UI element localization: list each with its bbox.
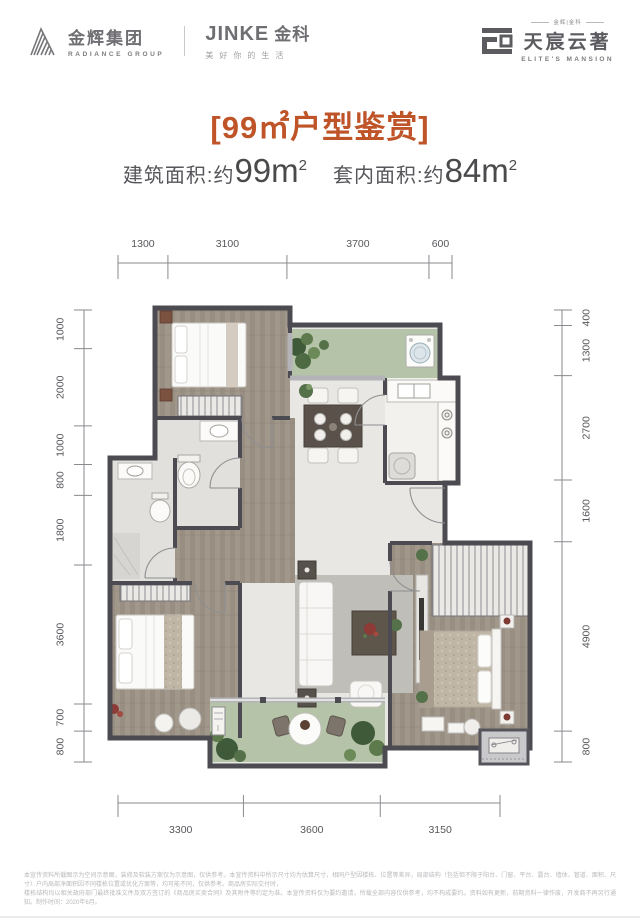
radiance-cn: 金辉集团 [68, 24, 164, 49]
ac-platform [480, 730, 528, 764]
bottom-strip [0, 916, 640, 918]
inner-area: 套内面积:约 84m 2 [333, 152, 517, 190]
svg-text:3300: 3300 [169, 824, 193, 836]
mansion-cloud-icon [481, 25, 513, 57]
mansion-text: 金辉|金科 天宸云著 ELITE'S MANSION [521, 18, 614, 63]
svg-text:1000: 1000 [55, 317, 67, 341]
svg-text:400: 400 [581, 309, 593, 327]
brand-left: 金辉集团 RADIANCE GROUP JINKE 金科 美好你的生活 [28, 20, 310, 61]
svg-text:3100: 3100 [216, 238, 240, 250]
washing-machine-icon [406, 335, 434, 367]
flyer-page: 金辉集团 RADIANCE GROUP JINKE 金科 美好你的生活 [0, 0, 640, 920]
disclaimer-line2: 楼栋结构均以相关政府部门最终批准文件及双方签订的《商品房买卖合同》及其附件等约定… [24, 890, 616, 908]
svg-text:4900: 4900 [581, 625, 593, 649]
svg-text:1300: 1300 [581, 339, 593, 363]
radiance-mountain-icon [28, 25, 58, 57]
svg-text:800: 800 [55, 471, 67, 489]
jinke-cn: 金科 [274, 20, 310, 45]
inner-area-value: 84m [445, 152, 509, 190]
built-area-value: 99m [234, 152, 298, 190]
radiance-text: 金辉集团 RADIANCE GROUP [68, 24, 164, 58]
built-area-label: 建筑面积:约 [123, 159, 235, 188]
svg-text:600: 600 [432, 238, 450, 250]
jinke-block: JINKE 金科 美好你的生活 [205, 20, 310, 61]
svg-text:700: 700 [55, 709, 67, 727]
built-area-sup: 2 [299, 157, 307, 174]
dimension-rail-right: 4001300270016004900800 [554, 305, 600, 772]
balcony-label-box [212, 707, 225, 735]
svg-text:800: 800 [581, 738, 593, 756]
svg-text:2700: 2700 [581, 416, 593, 440]
brand-divider [184, 26, 185, 56]
jinke-tagline: 美好你的生活 [205, 50, 310, 61]
header: 金辉集团 RADIANCE GROUP JINKE 金科 美好你的生活 [0, 0, 640, 78]
page-title: [99㎡户型鉴赏] [0, 102, 640, 147]
floor-plan [100, 293, 545, 777]
disclaimer: 本宣传资料所载图示为空间示意图，装修及软装方案仅为示意图，仅供参考。本宣传资料中… [24, 872, 616, 908]
dimension-rail-top: 130031003700600 [113, 233, 457, 288]
svg-text:3600: 3600 [55, 623, 67, 647]
jinke-brand: JINKE [205, 23, 269, 46]
mansion-en: ELITE'S MANSION [521, 56, 614, 63]
svg-text:1000: 1000 [55, 433, 67, 457]
inner-area-sup: 2 [509, 157, 517, 174]
disclaimer-line1: 本宣传资料所载图示为空间示意图，装修及软装方案仅为示意图，仅供参考。本宣传资料中… [24, 872, 616, 890]
mansion-cn: 天宸云著 [521, 27, 614, 54]
dimension-rail-bottom: 330036003150 [113, 795, 505, 850]
brand-right: 金辉|金科 天宸云著 ELITE'S MANSION [481, 18, 614, 63]
mansion-small-label: 金辉|金科 [521, 18, 614, 26]
svg-text:1800: 1800 [55, 518, 67, 542]
built-area: 建筑面积:约 99m 2 [123, 152, 307, 190]
radiance-en: RADIANCE GROUP [68, 51, 164, 58]
svg-text:1300: 1300 [131, 238, 155, 250]
svg-text:3150: 3150 [428, 824, 452, 836]
svg-text:2000: 2000 [55, 375, 67, 399]
svg-text:1600: 1600 [581, 499, 593, 523]
dimension-rail-left: 10002000100080018003600700800 [46, 305, 92, 772]
inner-area-label: 套内面积:约 [333, 159, 445, 188]
svg-text:3700: 3700 [346, 238, 370, 250]
area-stats: 建筑面积:约 99m 2 套内面积:约 84m 2 [0, 152, 640, 190]
svg-text:800: 800 [55, 738, 67, 756]
svg-text:3600: 3600 [300, 824, 324, 836]
